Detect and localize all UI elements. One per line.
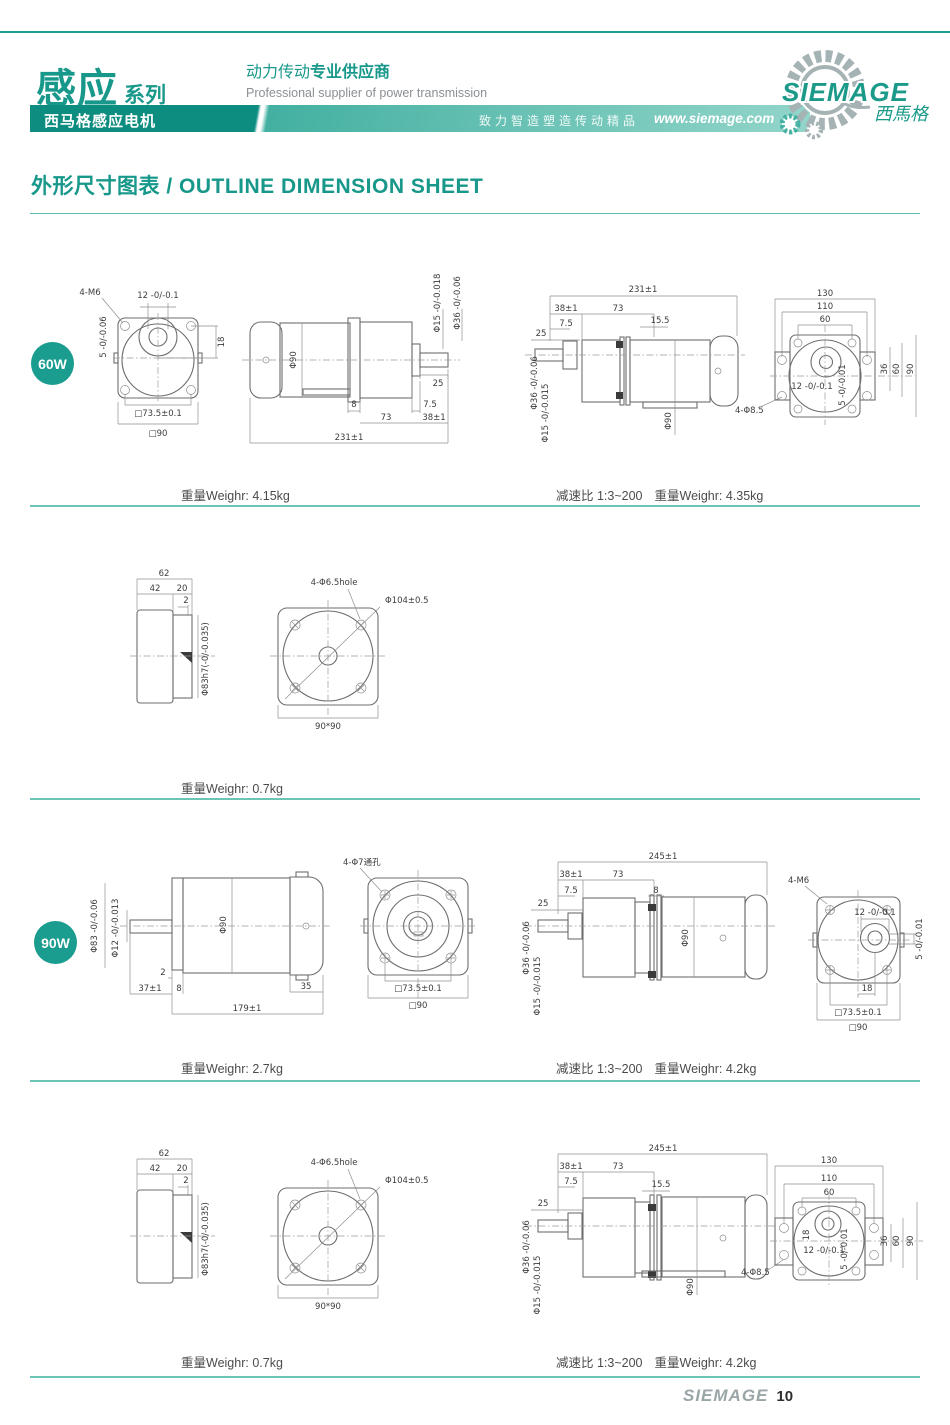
siemage-logo: SIEMAGE 西馬格 xyxy=(780,48,940,140)
supplier-tagline-cn: 动力传动专业供应商 xyxy=(246,58,487,82)
small-teal-gear-icon xyxy=(782,116,798,132)
dim-label: 4-Φ6.5hole xyxy=(311,1158,358,1168)
dim-label: 25 xyxy=(433,379,444,389)
geared-caption-bottom: 减速比 1:3~200 重量Weighr: 4.2kg xyxy=(556,1352,756,1371)
dim-label: 73 xyxy=(381,413,392,423)
dim-label: 7.5 xyxy=(559,319,573,329)
view-60w-motor-side: Φ90 Φ15 -0/-0.018 Φ36 -0/-0.06 25 8 7.5 … xyxy=(242,274,463,443)
ratio-label: 减速比 1:3~200 xyxy=(556,1352,643,1371)
dim-label: 4-Φ6.5hole xyxy=(311,578,358,588)
logo-cn-text: 西馬格 xyxy=(874,104,930,125)
dim-label: 7.5 xyxy=(423,400,437,410)
page-title: 外形尺寸图表 / OUTLINE DIMENSION SHEET xyxy=(31,170,483,200)
dim-label: 231±1 xyxy=(629,285,658,295)
dim-label: 60 xyxy=(892,1236,902,1247)
dim-label: Φ15 -0/-0.015 xyxy=(541,384,551,443)
dim-label: Φ15 -0/-0.018 xyxy=(433,274,443,333)
dim-label: 90*90 xyxy=(315,722,341,732)
weight-caption-fan: 重量Weighr: 0.7kg xyxy=(181,778,283,797)
dim-label: 42 xyxy=(150,584,161,594)
footer-rule xyxy=(30,1376,920,1378)
banner-slogan: 致力智造塑造传动精品 xyxy=(479,112,639,129)
view-fan-face-2: 4-Φ6.5hole Φ104±0.5 90*90 xyxy=(270,1158,429,1312)
view-fan-side: 62 42 20 2 Φ83h7(-0/-0.035) xyxy=(130,569,215,703)
dim-label: Φ104±0.5 xyxy=(385,1176,429,1186)
dim-label: □73.5±0.1 xyxy=(834,1008,882,1018)
section-rule-60w xyxy=(30,505,920,507)
banner-product-name: 西马格感应电机 xyxy=(44,110,156,131)
dim-label: 110 xyxy=(817,302,833,312)
dim-label: 5 -0/-0.01 xyxy=(840,1228,850,1269)
dim-label: 42 xyxy=(150,1164,161,1174)
dim-label: 4-Φ8.5 xyxy=(741,1268,770,1278)
small-gray-gear-icon xyxy=(807,123,821,137)
dim-label: 38±1 xyxy=(422,413,445,423)
dim-label: 90*90 xyxy=(315,1302,341,1312)
page-number: 10 xyxy=(776,1388,793,1405)
dim-label: □90 xyxy=(409,1001,428,1011)
dim-label: 73 xyxy=(613,1162,624,1172)
dim-label: 60 xyxy=(820,315,831,325)
dim-label: 12 -0/-0.1 xyxy=(137,291,178,301)
supplier-cn-bold: 专业供应商 xyxy=(310,64,390,81)
dim-label: 20 xyxy=(177,584,188,594)
dim-label: 90 xyxy=(906,364,916,375)
geared-caption-90w: 减速比 1:3~200 重量Weighr: 4.2kg xyxy=(556,1058,756,1077)
dim-label: 130 xyxy=(817,289,833,299)
dim-label: 5 -0/-0.01 xyxy=(915,918,925,959)
dim-label: Φ90 xyxy=(681,929,691,947)
weight-label: 重量Weighr: 4.2kg xyxy=(655,1352,757,1371)
weight-label: 重量Weighr: 4.2kg xyxy=(655,1058,757,1077)
dim-label: 2 xyxy=(183,596,188,606)
banner-website-link[interactable]: www.siemage.com xyxy=(654,111,774,126)
dim-label: 12 -0/-0.1 xyxy=(791,382,832,392)
section-rule-90w xyxy=(30,1080,920,1082)
dim-label: Φ90 xyxy=(686,1278,696,1296)
supplier-tagline-en: Professional supplier of power transmiss… xyxy=(246,86,487,100)
dim-label: 2 xyxy=(183,1176,188,1186)
dim-label: 110 xyxy=(821,1174,837,1184)
dim-label: 18 xyxy=(862,984,873,994)
view-90w-rear-face: 4-M6 12 -0/-0.1 5 -0/-0.01 18 □73.5±0.1 … xyxy=(788,876,925,1033)
dim-label: 73 xyxy=(613,304,624,314)
header-banner: 西马格感应电机 致力智造塑造传动精品 www.siemage.com xyxy=(30,105,810,132)
dim-label: Φ90 xyxy=(664,412,674,430)
dim-label: □73.5±0.1 xyxy=(134,409,182,419)
dim-label: Φ15 -0/-0.015 xyxy=(533,957,543,1016)
dim-label: 38±1 xyxy=(554,304,577,314)
geared-caption-60w: 减速比 1:3~200 重量Weighr: 4.35kg xyxy=(556,485,763,504)
dim-label: 36 xyxy=(880,1236,890,1247)
view-90w-motor-side: Φ83 -0/-0.06 Φ12 -0/-0.013 Φ90 2 37±1 8 … xyxy=(90,857,382,1014)
section-rule-fan xyxy=(30,798,920,800)
dim-label: 35 xyxy=(301,982,312,992)
logo-brand-text: SIEMAGE xyxy=(782,77,909,107)
dim-label: 245±1 xyxy=(649,1144,678,1154)
dim-label: 5 -0/-0.06 xyxy=(99,316,109,357)
dim-label: Φ90 xyxy=(289,351,299,369)
dim-label: Φ83 -0/-0.06 xyxy=(90,899,100,953)
view-90w-motor-front: □73.5±0.1 □90 xyxy=(360,870,476,1011)
dim-label: Φ90 xyxy=(219,916,229,934)
dim-label: 12 -0/-0.1 xyxy=(854,908,895,918)
dim-label: Φ12 -0/-0.013 xyxy=(111,899,121,958)
dim-label: 90 xyxy=(906,1236,916,1247)
dim-label: Φ83h7(-0/-0.035) xyxy=(201,622,211,696)
weight-caption-bottom: 重量Weighr: 0.7kg xyxy=(181,1352,283,1371)
dim-label: 38±1 xyxy=(559,870,582,880)
drawings-bottom: 62 42 20 2 Φ83h7(-0/-0.035) 4-Φ6.5ho xyxy=(30,1135,930,1340)
dim-label: 231±1 xyxy=(335,433,364,443)
dim-label: 25 xyxy=(538,1199,549,1209)
datasheet-page: 感应 系列 动力传动专业供应商 Professional supplier of… xyxy=(0,0,950,1425)
dim-label: 20 xyxy=(177,1164,188,1174)
dim-label: 7.5 xyxy=(564,1177,578,1187)
supplier-cn-normal: 动力传动 xyxy=(246,64,310,81)
view-60w-gearmotor-side: 231±1 38±1 73 7.5 15.5 25 Φ36 -0/-0.06 Φ… xyxy=(525,285,782,442)
ratio-label: 减速比 1:3~200 xyxy=(556,485,643,504)
weight-caption-60w: 重量Weighr: 4.15kg xyxy=(181,485,290,504)
dim-label: 179±1 xyxy=(233,1004,262,1014)
dim-label: 4-Φ7通孔 xyxy=(343,857,381,868)
dim-label: 62 xyxy=(159,569,170,579)
dim-label: Φ36 -0/-0.06 xyxy=(453,276,463,330)
dim-label: □73.5±0.1 xyxy=(394,984,442,994)
weight-label: 重量Weighr: 4.35kg xyxy=(655,485,764,504)
page-footer: SIEMAGE 10 xyxy=(683,1386,793,1406)
dim-label: □90 xyxy=(149,429,168,439)
drawings-fan-unit: 62 42 20 2 Φ83h7(-0/-0.035) 4-Φ6.5ho xyxy=(30,555,930,745)
view-90w-gearmotor-side: 245±1 38±1 73 7.5 8 25 Φ36 -0/-0.06 Φ15 … xyxy=(522,852,775,1015)
drawings-90w: Φ83 -0/-0.06 Φ12 -0/-0.013 Φ90 2 37±1 8 … xyxy=(30,848,930,1048)
dim-label: 4-M6 xyxy=(788,876,809,886)
dim-label: Φ36 -0/-0.06 xyxy=(522,921,532,975)
dim-label: 8 xyxy=(351,400,356,410)
dim-label: 15.5 xyxy=(651,316,670,326)
dim-label: Φ83h7(-0/-0.035) xyxy=(201,1202,211,1276)
top-rule xyxy=(0,31,950,33)
dim-label: 38±1 xyxy=(559,1162,582,1172)
dim-label: 2 xyxy=(160,968,165,978)
dim-label: 18 xyxy=(802,1230,812,1241)
dim-label: 5 -0/-0.01 xyxy=(838,364,848,405)
dim-label: 25 xyxy=(536,329,547,339)
dim-label: 37±1 xyxy=(138,984,161,994)
dim-label: 245±1 xyxy=(649,852,678,862)
dim-label: 12 -0/-0.1 xyxy=(803,1246,844,1256)
weight-caption-90w: 重量Weighr: 2.7kg xyxy=(181,1058,283,1077)
footer-brand: SIEMAGE xyxy=(683,1386,768,1406)
dim-label: □90 xyxy=(849,1023,868,1033)
view-60w-motor-front: 12 -0/-0.1 4-M6 5 -0/-0.06 18 □73.5±0.1 … xyxy=(79,288,227,439)
dim-label: 8 xyxy=(176,984,181,994)
dim-label: 60 xyxy=(892,364,902,375)
dim-label: 15.5 xyxy=(652,1180,671,1190)
view-fan-side-2: 62 42 20 2 Φ83h7(-0/-0.035) xyxy=(130,1149,215,1283)
dim-label: Φ104±0.5 xyxy=(385,596,429,606)
dim-label: 62 xyxy=(159,1149,170,1159)
dim-label: 73 xyxy=(613,870,624,880)
dim-label: 25 xyxy=(538,899,549,909)
drawings-60w: 12 -0/-0.1 4-M6 5 -0/-0.06 18 □73.5±0.1 … xyxy=(30,265,930,470)
title-rule xyxy=(30,213,920,214)
dim-label: 130 xyxy=(821,1156,837,1166)
dim-label: Φ36 -0/-0.06 xyxy=(530,356,540,410)
dim-label: 36 xyxy=(880,364,890,375)
view-bottom-gearbox-face: 130 110 60 18 12 -0/-0.1 5 -0/-0.01 36 6… xyxy=(770,1156,923,1287)
view-fan-face: 4-Φ6.5hole Φ104±0.5 90*90 xyxy=(270,578,429,732)
supplier-tagline: 动力传动专业供应商 Professional supplier of power… xyxy=(246,58,487,100)
dim-label: 8 xyxy=(653,886,658,896)
view-60w-gearbox-face: 130 110 60 12 -0/-0.1 5 -0/-0.01 36 60 9… xyxy=(770,289,916,425)
ratio-label: 减速比 1:3~200 xyxy=(556,1058,643,1077)
dim-label: Φ36 -0/-0.06 xyxy=(522,1220,532,1274)
dim-label: 7.5 xyxy=(564,886,578,896)
dim-label: 4-M6 xyxy=(79,288,100,298)
dim-label: 18 xyxy=(217,337,227,348)
dim-label: Φ15 -0/-0.015 xyxy=(533,1256,543,1315)
view-bottom-gearmotor-side: 245±1 38±1 73 7.5 15.5 25 Φ36 -0/-0.06 Φ… xyxy=(522,1144,783,1314)
